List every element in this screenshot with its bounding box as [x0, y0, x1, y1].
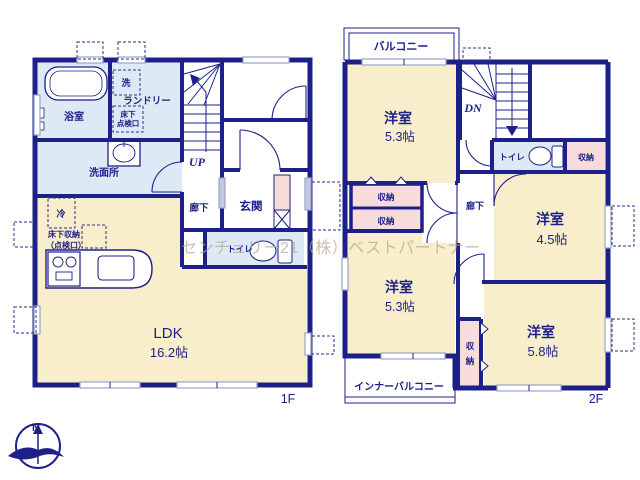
window-f2-room-e-right: [605, 206, 611, 248]
f2-closet-a-label: 収納: [377, 192, 394, 202]
f1-laundry-label: ランドリー: [123, 96, 171, 107]
f2-room-se-label: 洋室: [527, 324, 555, 340]
f2-closet-v-char1: 収: [466, 341, 475, 351]
f1-upper-room-door: [272, 86, 306, 120]
f2-stairs-arrow: [506, 126, 518, 136]
f2-room-n-size: 5.3帖: [385, 129, 415, 144]
f2-room-sw-size: 5.3帖: [385, 299, 415, 314]
window-f1-top-1: [77, 57, 103, 63]
stove-burner-2: [66, 257, 76, 267]
f1-bath-label: 浴室: [64, 110, 84, 123]
entrance-door: [240, 130, 280, 170]
f1-floor-label: 1F: [281, 392, 296, 406]
bathtub: [45, 67, 107, 100]
kitchen-sink: [98, 256, 134, 280]
compass-icon: N: [8, 422, 64, 468]
f2-closet-v: [460, 319, 481, 386]
window-f2-room-se-right: [605, 318, 611, 352]
entrance-porch: [312, 182, 340, 230]
f2-floor-label: 2F: [589, 392, 604, 406]
f1-ldk-size: 16.2帖: [150, 345, 188, 360]
f1-entrance-label: 玄関: [240, 199, 263, 213]
f2-room-se-size: 5.8帖: [527, 344, 558, 359]
f1-stairs-arrow: [190, 74, 200, 86]
f2-dn-label: DN: [463, 101, 483, 115]
window-f1-ldk-right: [305, 333, 311, 355]
f2-closet-v-char2: 納: [466, 356, 475, 366]
floorplan-page: 浴室 ランドリー 洗面所 洗 床下 点検口 冷 床下収納 （点検口） UP 廊下…: [0, 0, 640, 480]
f1-uf-access-l1: 床下: [121, 109, 136, 119]
f2-toilet-door: [466, 140, 492, 166]
f1-fridge-label: 冷: [56, 208, 65, 219]
f2-toilet-label: トイレ: [499, 152, 525, 162]
watermark-text: センチュリー21（株）ベストパートナー: [181, 239, 481, 257]
stove-grill: [56, 272, 72, 280]
floorplan-drawing: 浴室 ランドリー 洗面所 洗 床下 点検口 冷 床下収納 （点検口） UP 廊下…: [0, 0, 640, 480]
f1-washroom-label: 洗面所: [89, 166, 119, 179]
f2-closet-b-label: 収納: [377, 216, 394, 226]
f1-uf-access-l2: 点検口: [117, 118, 140, 128]
f2-room-e-size: 4.5帖: [536, 232, 567, 247]
f1-uf-storage-l2: （点検口）: [46, 240, 86, 250]
window-f1-bath: [34, 95, 40, 135]
f2-room-sw-label: 洋室: [385, 279, 413, 295]
f2-room-sw-door: [427, 213, 457, 243]
f1-entrance-door-band: [305, 178, 311, 210]
f1-stairs: [183, 64, 221, 152]
f2-inner-balcony-label: インナーバルコニー: [354, 381, 444, 393]
f2-toilet-bowl: [529, 147, 551, 165]
entrance-cabinet: [274, 175, 290, 210]
f2-balcony-label: バルコニー: [374, 40, 429, 53]
stove-burner-1: [53, 257, 63, 267]
f1-hall-label: 廊下: [189, 202, 209, 214]
f1-washer-label: 洗: [121, 77, 130, 88]
f2-room-e-label: 洋室: [536, 211, 564, 227]
compass-north-label: N: [32, 422, 40, 434]
f2-room-n-label: 洋室: [384, 110, 412, 126]
window-f2-room-sw-left: [342, 258, 348, 290]
kitchen-stove: [48, 252, 80, 286]
f2-closet-ne-label: 収納: [578, 152, 594, 162]
window-f1-top-2: [118, 57, 145, 63]
window-f1-top-3: [243, 57, 289, 63]
f2-fixtures: [529, 146, 563, 167]
f2-room-e: [494, 174, 606, 280]
f2-inner-balcony-outline: [345, 358, 455, 403]
f2-hall-label: 廊下: [466, 200, 484, 211]
f2-room-n-door: [427, 183, 457, 213]
f1-ldk-label: LDK: [153, 325, 182, 342]
f1-hall-slider-band: [219, 178, 225, 208]
window-f1-ldk-left: [34, 306, 40, 334]
f1-up-label: UP: [189, 155, 206, 169]
f1-uf-storage-l1: 床下収納: [48, 229, 80, 239]
f2-toilet-tank: [552, 146, 563, 167]
